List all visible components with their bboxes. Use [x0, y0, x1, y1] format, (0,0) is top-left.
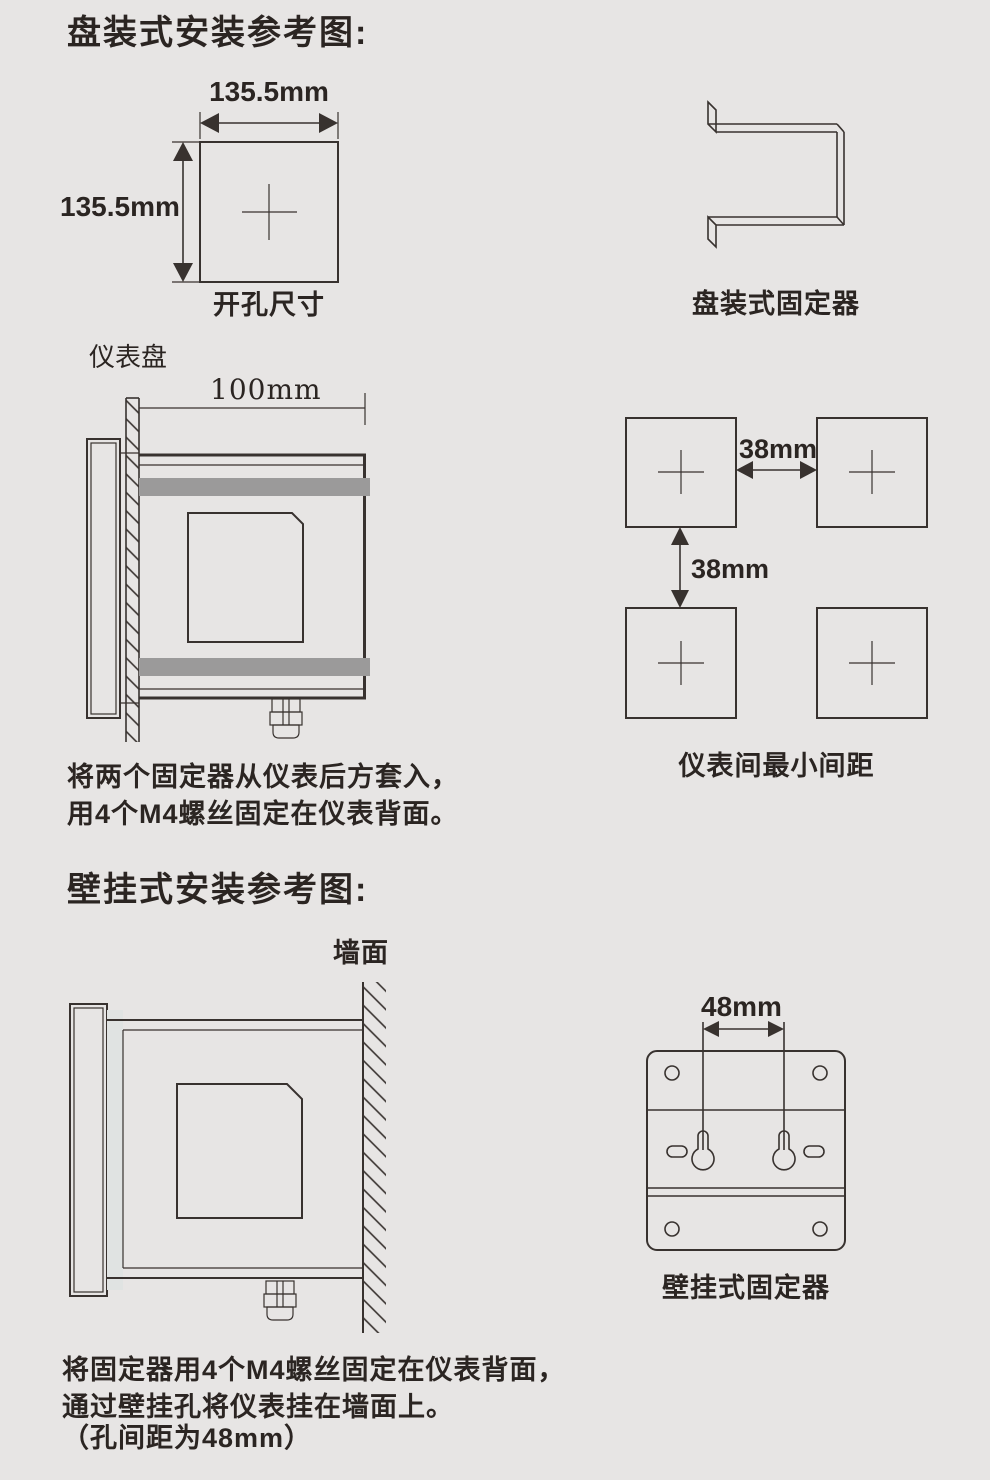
- wall-fixer-caption: 壁挂式固定器: [647, 1273, 845, 1304]
- wall-note-line1: 将固定器用4个M4螺丝固定在仪表背面，: [62, 1355, 566, 1386]
- cutout-square-drawing: [172, 112, 338, 282]
- instrument-panel-label: 仪表盘: [89, 344, 167, 374]
- wall-side-view-drawing: [70, 982, 386, 1333]
- cutout-width-label: 135.5mm: [200, 76, 338, 108]
- page: { "colors": { "background": "#e7e5e4", "…: [0, 0, 990, 1480]
- wall-label: 墙面: [333, 938, 389, 969]
- panel-side-view-drawing: [87, 393, 370, 742]
- wall-note-line3: （孔间距为48mm）: [62, 1423, 312, 1454]
- panel-bracket-caption: 盘装式固定器: [660, 289, 892, 320]
- panel-section-title: 盘装式安装参考图:: [67, 14, 368, 53]
- panel-note-line1: 将两个固定器从仪表后方套入，: [67, 762, 459, 793]
- wall-fixer-plate-drawing: [647, 1021, 845, 1250]
- spacing-horizontal-label: 38mm: [739, 434, 817, 465]
- panel-bracket-drawing: [708, 102, 844, 247]
- cutout-caption: 开孔尺寸: [200, 290, 338, 321]
- wall-section-title: 壁挂式安装参考图:: [67, 871, 368, 910]
- panel-note-line2: 用4个M4螺丝固定在仪表背面。: [67, 799, 459, 830]
- wall-note-line2: 通过壁挂孔将仪表挂在墙面上。: [62, 1392, 454, 1423]
- spacing-caption: 仪表间最小间距: [626, 751, 927, 782]
- cutout-height-label: 135.5mm: [60, 191, 180, 223]
- wall-fixer-dim-label: 48mm: [701, 991, 782, 1023]
- spacing-vertical-label: 38mm: [691, 554, 769, 585]
- depth-dimension-label: 100mm: [210, 374, 322, 406]
